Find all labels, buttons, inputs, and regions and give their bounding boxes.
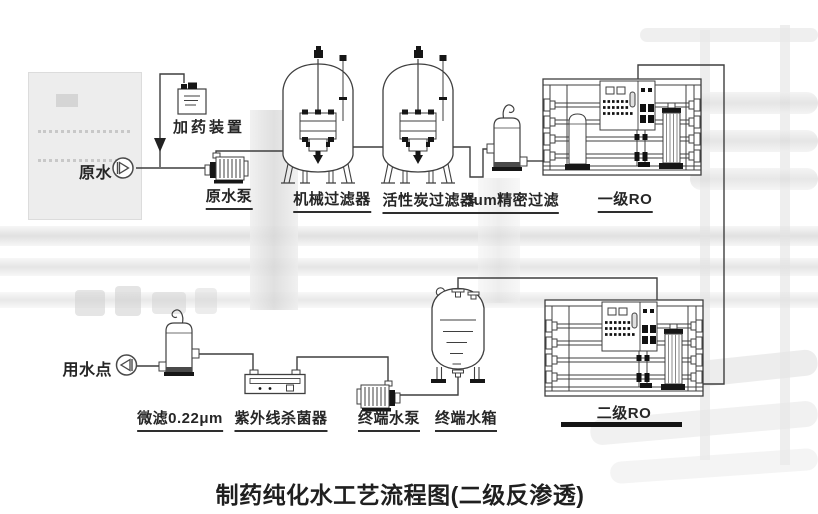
label-terminal-pump: 终端水泵 bbox=[358, 407, 420, 432]
label-raw-water: 原水 bbox=[50, 159, 112, 183]
label-stage2-ro: 二级RO bbox=[597, 402, 652, 423]
label-stage1-ro: 一级RO bbox=[598, 188, 653, 213]
raw-water-pump-icon bbox=[205, 153, 248, 184]
terminal-tank-icon bbox=[431, 288, 485, 383]
stage1-ro-icon bbox=[543, 79, 701, 175]
label-uv-sterilizer: 紫外线杀菌器 bbox=[234, 407, 327, 432]
diagram-title: 制药纯化水工艺流程图(二级反渗透) bbox=[216, 476, 585, 510]
raw-water-inlet-icon bbox=[113, 158, 133, 178]
stage2-ro-underline bbox=[561, 422, 682, 427]
label-precision-filter: 5um精密过滤 bbox=[465, 189, 559, 214]
precision-filter-icon bbox=[487, 105, 527, 171]
use-point-outlet-icon bbox=[117, 355, 137, 375]
carbon-filter-icon bbox=[381, 46, 455, 183]
uv-sterilizer-icon bbox=[245, 370, 305, 394]
stage2-ro-icon bbox=[545, 300, 703, 396]
label-raw-water-pump: 原水泵 bbox=[206, 185, 253, 210]
label-terminal-tank: 终端水箱 bbox=[435, 407, 497, 432]
dosing-arrow-icon bbox=[154, 138, 166, 152]
stage1-prefilter-icon bbox=[565, 114, 590, 170]
mechanical-filter-icon bbox=[281, 46, 355, 183]
diagram-canvas bbox=[0, 0, 818, 514]
process-flow-diagram: 原水 加药装置 原水泵 机械过滤器 活性炭过滤器 5um精密过滤 一级RO 用水… bbox=[0, 0, 818, 514]
dosing-device-icon bbox=[178, 83, 206, 115]
label-mechanical-filter: 机械过滤器 bbox=[293, 188, 371, 213]
label-dosing-device: 加药装置 bbox=[173, 116, 245, 137]
label-carbon-filter: 活性炭过滤器 bbox=[382, 189, 475, 214]
micro-filter-icon bbox=[159, 310, 199, 376]
label-micro-filter: 微滤0.22μm bbox=[137, 407, 223, 432]
label-use-point: 用水点 bbox=[44, 356, 112, 380]
